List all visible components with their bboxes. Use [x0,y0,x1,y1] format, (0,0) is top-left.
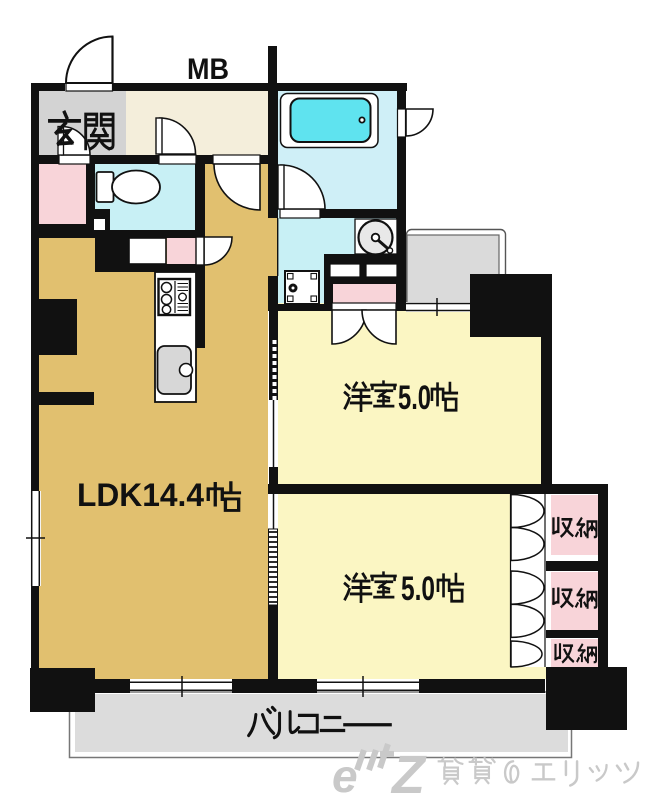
svg-text:e: e [332,750,358,800]
svg-text:Z: Z [390,745,427,800]
svg-text:MB: MB [187,53,229,86]
svg-text:LDK14.4: LDK14.4 [77,477,204,513]
svg-text:5.0: 5.0 [398,379,431,417]
svg-text:5.0: 5.0 [401,570,435,608]
